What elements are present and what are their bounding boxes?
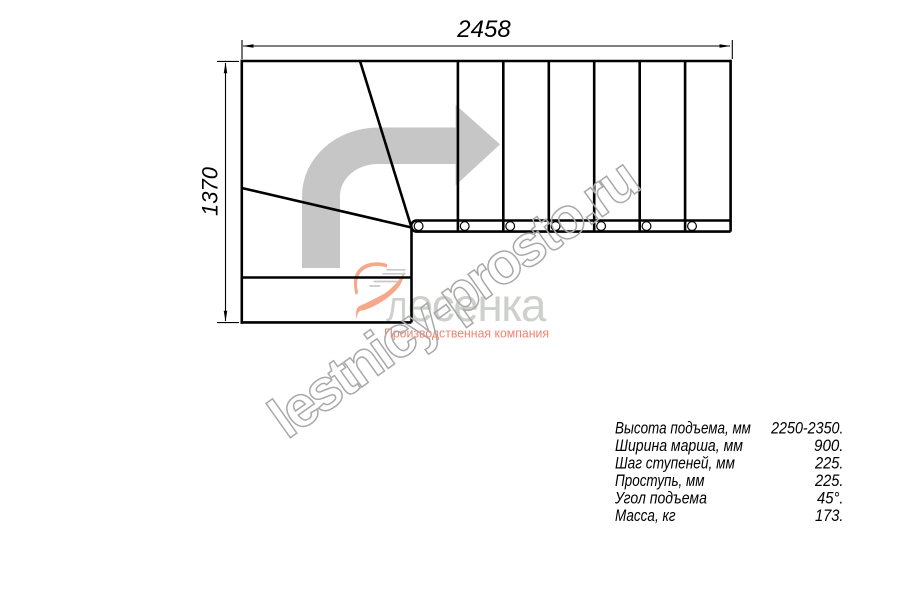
svg-text:2250-2350.: 2250-2350. <box>770 420 843 438</box>
svg-text:173.: 173. <box>815 507 843 525</box>
svg-text:Угол подъема: Угол подъема <box>614 490 707 508</box>
svg-text:900.: 900. <box>814 437 843 455</box>
svg-text:1370: 1370 <box>198 166 223 216</box>
svg-text:45°.: 45°. <box>817 490 843 508</box>
svg-text:Шаг ступеней, мм: Шаг ступеней, мм <box>615 454 735 472</box>
svg-text:2458: 2458 <box>456 16 511 43</box>
svg-text:Высота подъема, мм: Высота подъема, мм <box>615 419 752 438</box>
svg-text:225.: 225. <box>814 455 843 473</box>
svg-text:Масса, кг: Масса, кг <box>615 507 676 526</box>
svg-text:Ширина марша, мм: Ширина марша, мм <box>615 437 743 455</box>
svg-text:Проступь, мм: Проступь, мм <box>615 472 705 491</box>
svg-text:225.: 225. <box>814 472 843 490</box>
